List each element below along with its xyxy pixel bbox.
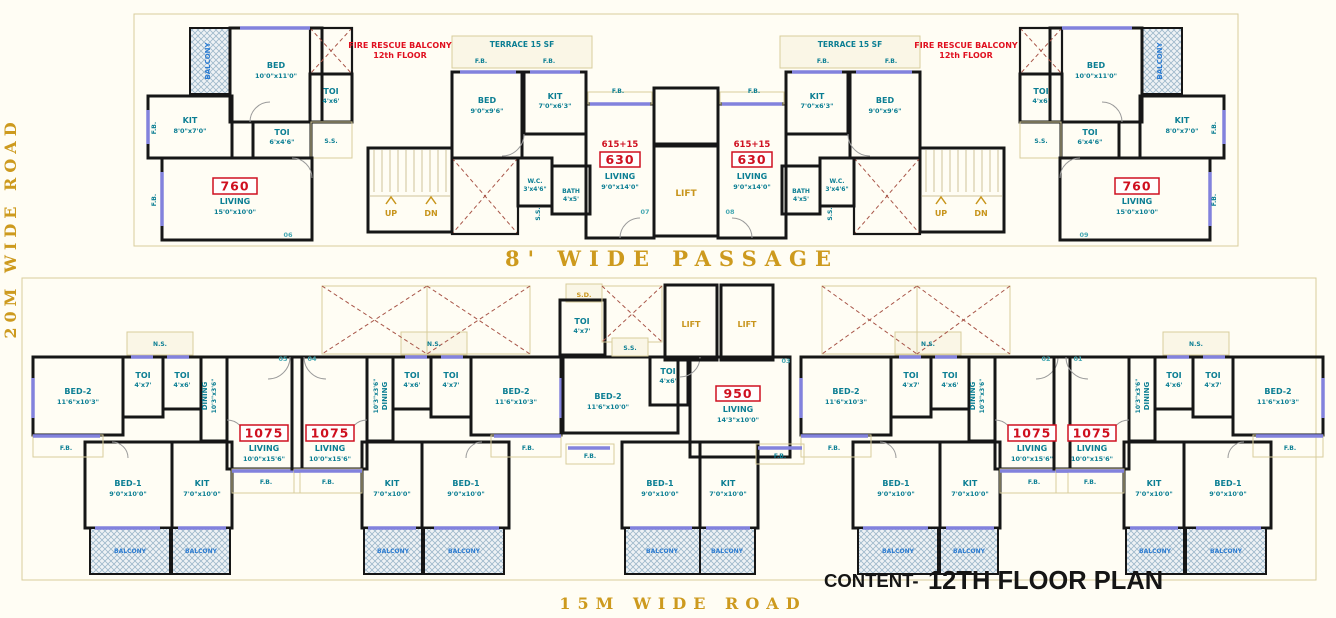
floor-plan-drawing: BALCONY BED 10'0"x11'0" TOI 4'x6' KIT 8'… bbox=[0, 0, 1336, 618]
toi-dim: 4'x7' bbox=[134, 381, 151, 389]
up-label: UP bbox=[935, 209, 947, 218]
area-badge: 950 bbox=[723, 386, 752, 401]
bed1-label: BED-1 bbox=[882, 479, 910, 488]
wc-dim: 3'x4'6" bbox=[523, 186, 546, 193]
toi-label: TOI bbox=[1082, 128, 1097, 137]
toi-dim: 4'x7' bbox=[442, 381, 459, 389]
unit-1075-a bbox=[33, 332, 302, 574]
living-label: LIVING bbox=[1017, 444, 1048, 453]
fb-label: F.B. bbox=[1211, 122, 1218, 134]
dining-dim: 10'3"x3'6" bbox=[211, 379, 218, 414]
fb-label: F.B. bbox=[522, 445, 534, 452]
terrace-label: TERRACE 15 SF bbox=[490, 40, 554, 49]
toi-dim: 4'x6' bbox=[659, 377, 676, 385]
fb-label: F.B. bbox=[584, 453, 596, 460]
bed1-label: BED-1 bbox=[114, 479, 142, 488]
kit-label: KIT bbox=[548, 92, 563, 101]
area-badge: 1075 bbox=[1013, 426, 1052, 441]
fb-label: F.B. bbox=[475, 58, 487, 65]
living-label: LIVING bbox=[1077, 444, 1108, 453]
balcony-label: BALCONY bbox=[204, 41, 212, 79]
area-badge: 630 bbox=[605, 152, 634, 167]
unit-1075-d bbox=[801, 332, 1070, 574]
balcony-label: BALCONY bbox=[1156, 41, 1164, 79]
area-badge: 760 bbox=[1122, 179, 1151, 194]
bed2-dim: 11'6"x10'3" bbox=[825, 398, 867, 406]
dining-dim: 10'3"x3'6" bbox=[1135, 379, 1142, 414]
toi-dim: 6'x4'6" bbox=[269, 138, 294, 146]
living-label: LIVING bbox=[249, 444, 280, 453]
fire-rescue-note: FIRE RESCUE BALCONY bbox=[348, 41, 452, 50]
living-label: LIVING bbox=[737, 172, 768, 181]
bed1-dim: 9'0"x10'0" bbox=[447, 490, 485, 498]
bed-label: BED bbox=[876, 96, 895, 105]
kit-label: KIT bbox=[195, 479, 210, 488]
kit-dim: 7'0"x10'0" bbox=[709, 490, 747, 498]
fb-label: F.B. bbox=[885, 58, 897, 65]
bed-dim: 9'0"x9'6" bbox=[470, 107, 503, 115]
living-label: LIVING bbox=[723, 405, 754, 414]
living-dim: 15'0"x10'0" bbox=[1116, 208, 1158, 216]
kit-label: KIT bbox=[810, 92, 825, 101]
area-pre: 615+15 bbox=[602, 140, 639, 150]
fire-rescue-note-line2: 12th FLOOR bbox=[939, 51, 992, 60]
toi-dim: 6'x4'6" bbox=[1077, 138, 1102, 146]
fb-label: F.B. bbox=[774, 453, 786, 460]
bed-label: BED bbox=[267, 61, 286, 70]
kit-dim: 8'0"x7'0" bbox=[1165, 127, 1198, 135]
balcony-label: BALCONY bbox=[1139, 548, 1172, 555]
toi-label: TOI bbox=[443, 371, 458, 380]
toi-label: TOI bbox=[274, 128, 289, 137]
toi-label: TOI bbox=[1166, 371, 1181, 380]
living-label: LIVING bbox=[605, 172, 636, 181]
area-badge: 1075 bbox=[311, 426, 350, 441]
door-marker: 05 bbox=[278, 355, 288, 363]
ns-label: N.S. bbox=[1189, 341, 1203, 348]
sd-label: S.D. bbox=[576, 291, 591, 299]
living-dim: 15'0"x10'0" bbox=[214, 208, 256, 216]
fire-rescue-note: FIRE RESCUE BALCONY bbox=[914, 41, 1018, 50]
dining-dim: 10'3"x3'6" bbox=[979, 379, 986, 414]
toi-label: TOI bbox=[942, 371, 957, 380]
balcony-label: BALCONY bbox=[711, 548, 744, 555]
wc-label: W.C. bbox=[527, 178, 542, 185]
door-marker: 02 bbox=[1041, 355, 1050, 363]
bed1-label: BED-1 bbox=[1214, 479, 1242, 488]
fb-label: F.B. bbox=[260, 479, 272, 486]
bath-dim: 4'x5' bbox=[563, 196, 579, 203]
lift-shaft-upper bbox=[654, 88, 718, 144]
road-bottom-label: 15M WIDE ROAD bbox=[559, 594, 806, 613]
kit-dim: 7'0"x6'3" bbox=[800, 102, 833, 110]
toi-dim: 4'x7' bbox=[902, 381, 919, 389]
door-marker: 09 bbox=[1079, 231, 1089, 239]
title-prefix: CONTENT- bbox=[824, 570, 919, 591]
toi-dim: 4'x7' bbox=[1204, 381, 1221, 389]
toi-dim: 4'x6' bbox=[403, 381, 420, 389]
kit-label: KIT bbox=[385, 479, 400, 488]
toi-dim: 4'x6' bbox=[173, 381, 190, 389]
fb-label: F.B. bbox=[322, 479, 334, 486]
fb-label: F.B. bbox=[543, 58, 555, 65]
lift-label: LIFT bbox=[738, 320, 758, 329]
toi-dim: 4'x6' bbox=[322, 97, 339, 105]
toi-label: TOI bbox=[135, 371, 150, 380]
door-marker: 01 bbox=[1073, 355, 1083, 363]
bed-dim: 9'0"x9'6" bbox=[868, 107, 901, 115]
toi-dim: 4'x6' bbox=[1165, 381, 1182, 389]
fb-label: F.B. bbox=[748, 88, 760, 95]
toi-label: TOI bbox=[323, 87, 338, 96]
bed2-dim: 11'6"x10'3" bbox=[495, 398, 537, 406]
fb-label: F.B. bbox=[151, 122, 158, 134]
bed-dim: 10'0"x11'0" bbox=[255, 72, 297, 80]
kit-label: KIT bbox=[1147, 479, 1162, 488]
toi-dim: 4'x7' bbox=[573, 327, 590, 335]
toi-label: TOI bbox=[404, 371, 419, 380]
bed2-dim: 11'6"x10'3" bbox=[1257, 398, 1299, 406]
page-title: 12TH FLOOR PLAN bbox=[928, 567, 1163, 595]
balcony-label: BALCONY bbox=[953, 548, 986, 555]
fb-label: F.B. bbox=[1028, 479, 1040, 486]
living-dim: 10'0"x15'6" bbox=[309, 455, 351, 463]
toi-label: TOI bbox=[574, 317, 589, 326]
door-marker: 06 bbox=[283, 231, 293, 239]
lift-label: LIFT bbox=[682, 320, 702, 329]
bed2-label: BED-2 bbox=[594, 392, 621, 401]
fb-label: F.B. bbox=[151, 194, 158, 206]
living-label: LIVING bbox=[220, 197, 251, 206]
bed-label: BED bbox=[478, 96, 497, 105]
area-badge: 1075 bbox=[245, 426, 284, 441]
bed1-label: BED-1 bbox=[452, 479, 480, 488]
kit-label: KIT bbox=[1175, 116, 1190, 125]
balcony-label: BALCONY bbox=[448, 548, 481, 555]
living-dim: 10'0"x15'6" bbox=[1071, 455, 1113, 463]
bed2-label: BED-2 bbox=[502, 387, 529, 396]
living-dim: 9'0"x14'0" bbox=[733, 183, 771, 191]
kit-dim: 7'0"x10'0" bbox=[951, 490, 989, 498]
toi-label: TOI bbox=[660, 367, 675, 376]
bed1-dim: 9'0"x10'0" bbox=[877, 490, 915, 498]
unit-950 bbox=[563, 357, 804, 574]
fb-label: F.B. bbox=[612, 88, 624, 95]
dn-label: DN bbox=[974, 209, 987, 218]
ss-label: S.S. bbox=[623, 345, 636, 352]
wc-label: W.C. bbox=[829, 178, 844, 185]
kit-dim: 7'0"x10'0" bbox=[183, 490, 221, 498]
dining-label: DINING bbox=[201, 382, 209, 411]
ns-label: N.S. bbox=[921, 341, 935, 348]
bath-label: BATH bbox=[562, 188, 580, 195]
balcony-label: BALCONY bbox=[377, 548, 410, 555]
living-dim: 10'0"x15'6" bbox=[243, 455, 285, 463]
ss-label: S.S. bbox=[827, 207, 834, 220]
balcony-label: BALCONY bbox=[882, 548, 915, 555]
fb-label: F.B. bbox=[1211, 194, 1218, 206]
door-marker: 07 bbox=[640, 208, 649, 216]
living-dim: 9'0"x14'0" bbox=[601, 183, 639, 191]
bed1-dim: 9'0"x10'0" bbox=[641, 490, 679, 498]
road-left-label: 20M WIDE ROAD bbox=[1, 117, 20, 338]
bed2-label: BED-2 bbox=[832, 387, 859, 396]
kit-dim: 7'0"x10'0" bbox=[373, 490, 411, 498]
kit-label: KIT bbox=[963, 479, 978, 488]
wc-dim: 3'x4'6" bbox=[825, 186, 848, 193]
balcony-label: BALCONY bbox=[1210, 548, 1243, 555]
living-dim: 14'3"x10'0" bbox=[717, 416, 759, 424]
ns-label: N.S. bbox=[427, 341, 441, 348]
area-pre: 615+15 bbox=[734, 140, 771, 150]
bath-dim: 4'x5' bbox=[793, 196, 809, 203]
balcony-label: BALCONY bbox=[646, 548, 679, 555]
dining-label: DINING bbox=[969, 382, 977, 411]
kit-dim: 8'0"x7'0" bbox=[173, 127, 206, 135]
area-badge: 1075 bbox=[1073, 426, 1112, 441]
bed2-dim: 11'6"x10'0" bbox=[587, 403, 629, 411]
passage-label: 8' WIDE PASSAGE bbox=[505, 246, 839, 271]
unit-1075-e bbox=[1054, 332, 1323, 574]
floor-plan-canvas: BALCONY BED 10'0"x11'0" TOI 4'x6' KIT 8'… bbox=[0, 0, 1336, 618]
fb-label: F.B. bbox=[817, 58, 829, 65]
toi-dim: 4'x6' bbox=[1032, 97, 1049, 105]
door-marker: 08 bbox=[725, 208, 735, 216]
toi-label: TOI bbox=[1033, 87, 1048, 96]
balcony-label: BALCONY bbox=[185, 548, 218, 555]
fb-label: F.B. bbox=[60, 445, 72, 452]
bed-dim: 10'0"x11'0" bbox=[1075, 72, 1117, 80]
dining-dim: 10'3"x3'6" bbox=[373, 379, 380, 414]
living-dim: 10'0"x15'6" bbox=[1011, 455, 1053, 463]
living-label: LIVING bbox=[1122, 197, 1153, 206]
fire-rescue-note-line2: 12th FLOOR bbox=[373, 51, 426, 60]
bed1-dim: 9'0"x10'0" bbox=[109, 490, 147, 498]
lift-label: LIFT bbox=[675, 189, 697, 199]
kit-dim: 7'0"x6'3" bbox=[538, 102, 571, 110]
living-label: LIVING bbox=[315, 444, 346, 453]
terrace-label: TERRACE 15 SF bbox=[818, 40, 882, 49]
dining-label: DINING bbox=[1143, 382, 1151, 411]
dining-label: DINING bbox=[381, 382, 389, 411]
kit-dim: 7'0"x10'0" bbox=[1135, 490, 1173, 498]
area-badge: 630 bbox=[737, 152, 766, 167]
kit-label: KIT bbox=[721, 479, 736, 488]
bed2-label: BED-2 bbox=[1264, 387, 1291, 396]
door-marker: 04 bbox=[307, 355, 317, 363]
top-wing-outline bbox=[134, 14, 1238, 246]
fb-label: F.B. bbox=[1284, 445, 1296, 452]
toi-label: TOI bbox=[1205, 371, 1220, 380]
bed2-dim: 11'6"x10'3" bbox=[57, 398, 99, 406]
toi-dim: 4'x6' bbox=[941, 381, 958, 389]
kit-label: KIT bbox=[183, 116, 198, 125]
bath-label: BATH bbox=[792, 188, 810, 195]
bed1-dim: 9'0"x10'0" bbox=[1209, 490, 1247, 498]
toi-label: TOI bbox=[174, 371, 189, 380]
ss-label: S.S. bbox=[324, 138, 337, 145]
fb-label: F.B. bbox=[828, 445, 840, 452]
toi-label: TOI bbox=[903, 371, 918, 380]
up-label: UP bbox=[385, 209, 397, 218]
unit-1075-b bbox=[292, 332, 561, 574]
fb-label: F.B. bbox=[1084, 479, 1096, 486]
ss-label: S.S. bbox=[1034, 138, 1047, 145]
area-badge: 760 bbox=[220, 179, 249, 194]
balcony-label: BALCONY bbox=[114, 548, 147, 555]
ss-label: S.S. bbox=[535, 207, 542, 220]
bed2-label: BED-2 bbox=[64, 387, 91, 396]
bed-label: BED bbox=[1087, 61, 1106, 70]
ns-label: N.S. bbox=[153, 341, 167, 348]
dn-label: DN bbox=[424, 209, 437, 218]
door-marker: 03 bbox=[781, 357, 790, 365]
bed1-label: BED-1 bbox=[646, 479, 674, 488]
